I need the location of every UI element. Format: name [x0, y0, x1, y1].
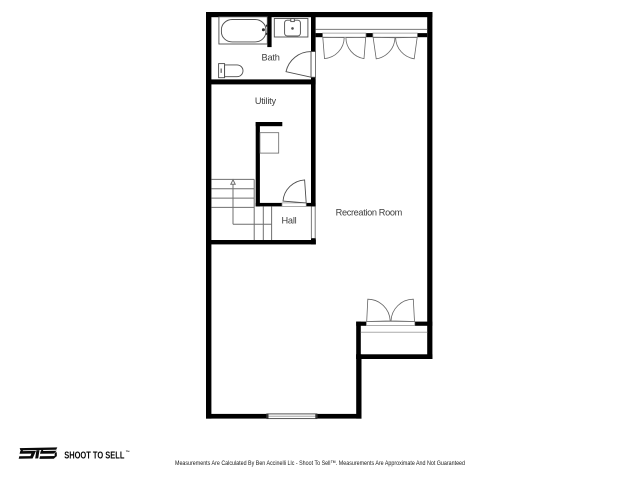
svg-text:Hall: Hall — [281, 216, 296, 226]
svg-text:SHOOT TO SELL: SHOOT TO SELL — [64, 449, 125, 460]
svg-text:Measurements Are Calculated By: Measurements Are Calculated By Ben Accin… — [175, 460, 465, 467]
svg-text:™: ™ — [126, 450, 130, 455]
svg-text:Bath: Bath — [262, 53, 280, 63]
svg-text:Recreation Room: Recreation Room — [336, 208, 403, 218]
svg-text:Utility: Utility — [255, 96, 277, 106]
